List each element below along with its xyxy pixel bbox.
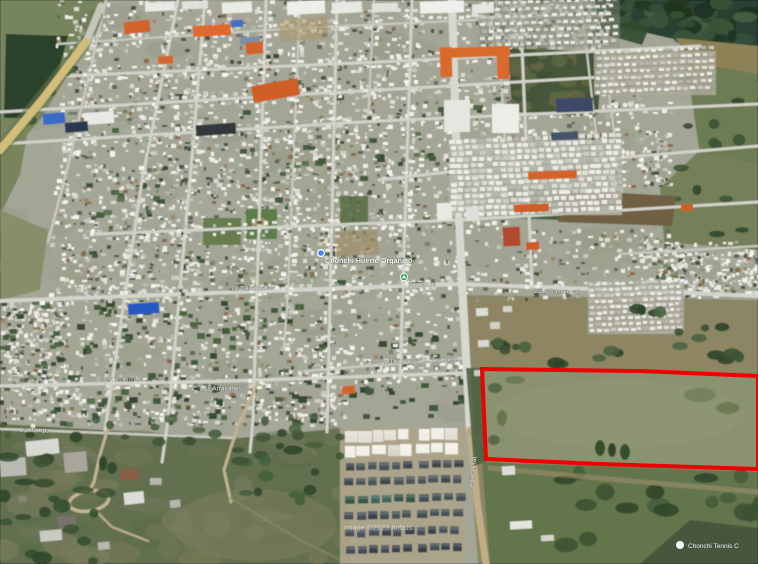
svg-text:Chonchi Huerto Orgánico: Chonchi Huerto Orgánico [325, 256, 413, 265]
svg-text:Image ©2023 Airbus: Image ©2023 Airbus [344, 523, 412, 532]
svg-text:La Pampa: La Pampa [20, 427, 50, 435]
svg-text:Riquelme: Riquelme [408, 281, 436, 289]
svg-text:C. Talcahuano: C. Talcahuano [232, 285, 274, 293]
svg-text:2das Transversal: 2das Transversal [534, 289, 580, 296]
svg-text:C. Los Arrayanes: C. Los Arrayanes [192, 385, 243, 393]
svg-text:Chonchi Tennis C: Chonchi Tennis C [688, 543, 739, 550]
